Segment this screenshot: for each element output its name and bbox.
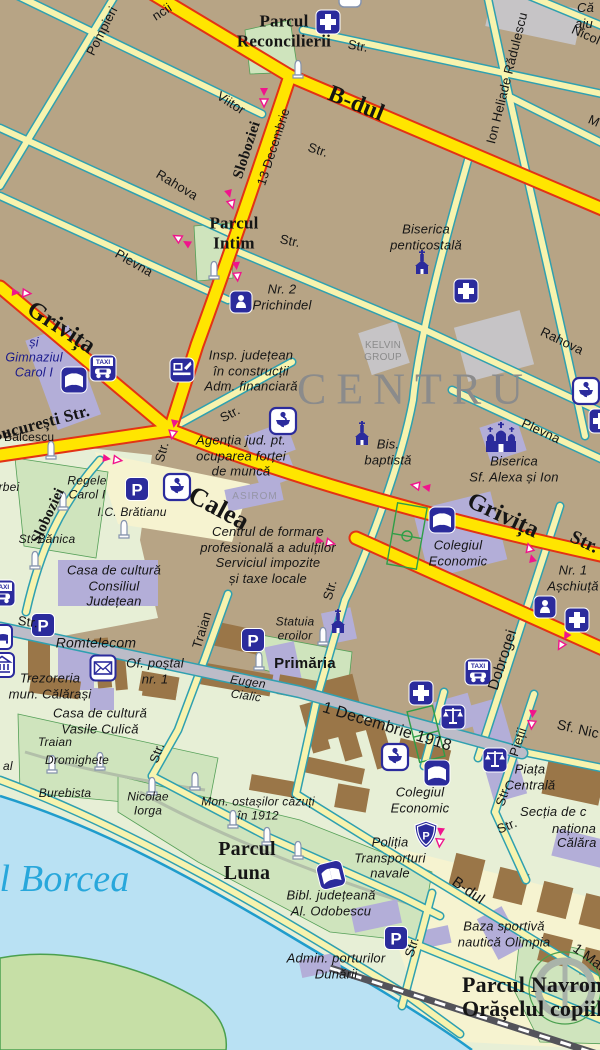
street-label-sf-nicolae: Sf. Nic: [555, 716, 600, 742]
street-label-str: Str.: [217, 402, 242, 425]
street-label-str: Str.: [278, 231, 301, 250]
street-label-str: Str.: [402, 935, 423, 959]
street-label-rahova: Rahova: [153, 166, 200, 203]
park-label-luna: Parcul Luna: [218, 837, 276, 885]
street-label-pietii: Pieții: [506, 726, 530, 759]
poi-label-monument-1912: Mon. ostașilor căzuți în 1912: [201, 795, 315, 824]
street-label-dobrogei: Dobrogei: [485, 628, 521, 693]
poi-label-centrul-formare: Centrul de formare profesională a adulți…: [200, 524, 336, 586]
street-label-fragment: ncii: [149, 0, 175, 24]
street-label-bdul: B-dul: [324, 80, 389, 129]
poi-label-fragment: aju: [575, 16, 593, 32]
poi-label-bratianu: I.C. Brătianu: [97, 505, 166, 519]
street-label-1-mai: 1 Mai: [570, 940, 600, 974]
street-label-plevna: Plevna: [519, 415, 563, 446]
poi-label-sectia-fragment: Călăra: [557, 835, 597, 851]
street-label-str: Str.: [566, 527, 600, 560]
poi-label-agentia: Agenția jud. pt. ocuparea forței de munc…: [196, 433, 286, 480]
park-label-intim: Parcul Intim: [209, 214, 258, 255]
street-label-fragment: M: [586, 112, 600, 131]
company-label-kelvin-group: KELVIN GROUP: [364, 340, 402, 364]
street-label-pompieri: Pompieri: [83, 4, 121, 58]
poi-label-dromighete: Dromighete: [45, 753, 109, 767]
poi-label-piata-centrala: Piața Centrală: [505, 761, 556, 792]
poi-label-burebista: Burebista: [39, 786, 92, 800]
street-label-str: Str.: [495, 815, 520, 837]
poi-label-aschiuta: Nr. 1 Așchiuță: [547, 562, 598, 593]
poi-label-inspectorat: Insp. județean în construcții Adm. finan…: [204, 348, 297, 395]
street-label-str: Str.: [152, 440, 172, 464]
poi-label-biserica-sf-alexa: Biserica Sf. Alexa și Ion: [469, 453, 558, 484]
street-label-bdul: B-dul: [448, 873, 488, 908]
poi-label-fragment: Că: [577, 0, 594, 16]
company-label-asirom: ASIROM: [232, 491, 277, 503]
poi-label-baza-sportiva: Baza sportivă nautică Olimpia: [458, 918, 551, 949]
street-label-rahova: Rahova: [538, 324, 586, 358]
street-label-1-decembrie-1918: 1 Decembrie 1918: [320, 698, 454, 756]
poi-label-biserica-baptista: Bis. baptistă: [364, 436, 411, 467]
poi-label-colegiul-economic: Colegiul Economic: [429, 537, 488, 568]
park-label-navrom: Parcul Navrom Orășelul copiilor: [462, 973, 600, 1021]
poi-label-statuia-eroilor: Statuia eroilor: [276, 615, 315, 644]
poi-label-trezoreria: Trezoreria mun. Călărași: [9, 670, 92, 701]
poi-label-primaria: Primăria: [274, 655, 336, 673]
poi-label-politia-navale: Poliția Transporturi navale: [354, 835, 426, 882]
poi-label-sectia-fragment: Secția de c: [520, 804, 587, 820]
poi-label-biblioteca: Bibl. județeană Al. Odobescu: [286, 887, 375, 918]
poi-label-colegiul-economic: Colegiul Economic: [391, 784, 450, 815]
poi-label-biserica-penticostala: Biserica penticostală: [390, 221, 462, 252]
city-map-calarasi-centru[interactable]: P TAXI P: [0, 0, 600, 1050]
poi-label-stirbei: Știrbei: [0, 480, 19, 494]
poi-label-balcescu: Bălcescu: [4, 430, 54, 444]
poi-label-regele-carol: Regele Carol I: [67, 474, 106, 503]
street-label-str: Str.: [17, 613, 39, 631]
river-label-borcea: Brațul Borcea: [0, 857, 130, 903]
street-label-plevna: Plevna: [112, 246, 155, 280]
street-label-viitor: Viitor: [214, 88, 248, 118]
street-label-traian: Traian: [189, 610, 215, 650]
poi-label-vasile-culica: Casa de cultură Vasile Culică: [53, 705, 147, 736]
street-label-str: Str.: [347, 37, 370, 56]
poi-label-prichindel: Nr. 2 Prichindel: [252, 281, 311, 312]
poi-label-romtelecom: Romtelecom: [56, 635, 137, 652]
poi-label-gimnaziul-carol-i: și Gimnaziul Carol I: [5, 336, 62, 381]
poi-label-consiliul-judetean: Casa de cultură Consiliul Județean: [67, 563, 161, 610]
street-label-str: Str.: [146, 741, 168, 765]
poi-label-nicolae-iorga: Nicolae Iorga: [127, 790, 168, 819]
street-label-str: Str.: [306, 139, 330, 160]
street-label-13-decembrie: 13 Decembrie: [254, 107, 293, 188]
map-labels: ncii Pompieri Parcul Reconcilierii Str. …: [0, 0, 600, 1050]
poi-label-admin-porturilor: Admin. porturilor Dunării: [287, 950, 386, 981]
park-label-reconcilierii: Parcul Reconcilierii: [237, 12, 331, 53]
poi-label-oficiul-postal: Of. poștal nr. 1: [126, 655, 184, 686]
poi-label-fragment: al: [3, 759, 13, 773]
district-label-centru: CENTRU: [297, 364, 533, 417]
street-label-ion-heliade-radulescu: Ion Heliade Rădulescu: [483, 11, 531, 146]
street-label-grivita: Grivița: [462, 487, 543, 545]
poi-label-traian-monument: Traian: [38, 735, 72, 749]
street-label-eugen-cialic: Eugen Cialic: [227, 672, 266, 705]
